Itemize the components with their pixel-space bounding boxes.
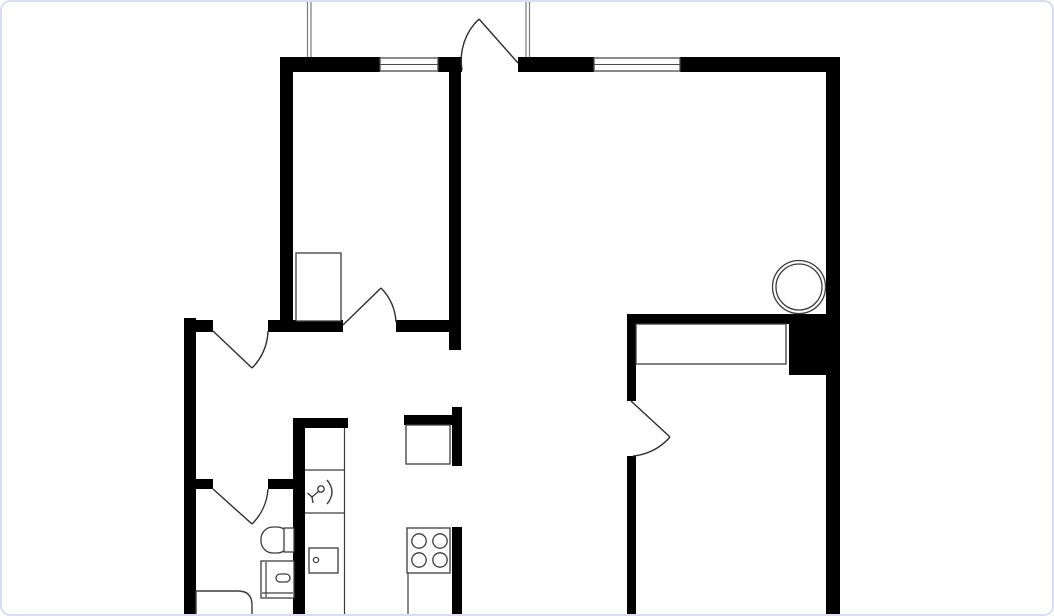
bedroom1-closet xyxy=(296,253,341,321)
kitchen-west-wall-cap xyxy=(293,418,348,428)
floorplan-canvas xyxy=(0,0,1054,616)
shaft-north-wall xyxy=(404,415,452,425)
bedroom2-closet xyxy=(636,324,786,364)
bedroom2-west-wall-upper xyxy=(627,314,636,401)
shaft-east-wall xyxy=(452,407,462,466)
floorplan-drawing xyxy=(0,0,1054,616)
hall-north-wall-segment-3 xyxy=(396,320,461,332)
bedroom2-door-leaf xyxy=(631,401,670,437)
bathroom-north-wall-segment-1 xyxy=(196,479,213,489)
bedroom1-door-leaf xyxy=(343,288,381,325)
bedroom1-door-swing xyxy=(381,288,396,322)
entry-door-leaf xyxy=(479,19,518,63)
right-exterior-wall xyxy=(826,57,840,616)
duct-block xyxy=(789,314,826,375)
bedroom2-west-wall-lower xyxy=(627,456,636,616)
kitchen-west-wall xyxy=(293,418,305,616)
hall-door-swing xyxy=(252,331,268,368)
bedroom2-door-swing xyxy=(633,437,670,456)
shaft-box xyxy=(406,425,450,464)
bathroom-sink-faucet xyxy=(276,574,290,582)
round-column-outer xyxy=(773,261,826,314)
kitchen-sink-faucet-tap xyxy=(308,491,320,503)
window-2 xyxy=(594,58,680,71)
kitchen-east-wall xyxy=(452,527,462,616)
bedroom1-east-wall xyxy=(449,72,461,350)
window-1 xyxy=(380,58,438,71)
top-wall-segment-2 xyxy=(438,57,462,72)
entry-door-swing xyxy=(461,19,479,70)
hall-north-wall-segment-2 xyxy=(268,320,343,332)
bathroom-door-swing xyxy=(252,489,268,524)
bathtub xyxy=(196,591,252,616)
top-wall-segment-3 xyxy=(518,57,594,72)
toilet-tank xyxy=(284,528,294,552)
round-column-inner xyxy=(776,264,822,310)
top-wall-segment-1 xyxy=(280,57,380,72)
left-exterior-wall xyxy=(184,318,196,616)
kitchen-sink-faucet-curve xyxy=(327,480,332,504)
bedroom1-west-wall xyxy=(280,57,293,321)
hall-door-leaf xyxy=(213,331,252,368)
bathroom-door-leaf xyxy=(213,489,252,524)
bedroom2-north-wall xyxy=(627,314,789,324)
top-wall-segment-4 xyxy=(680,57,826,72)
